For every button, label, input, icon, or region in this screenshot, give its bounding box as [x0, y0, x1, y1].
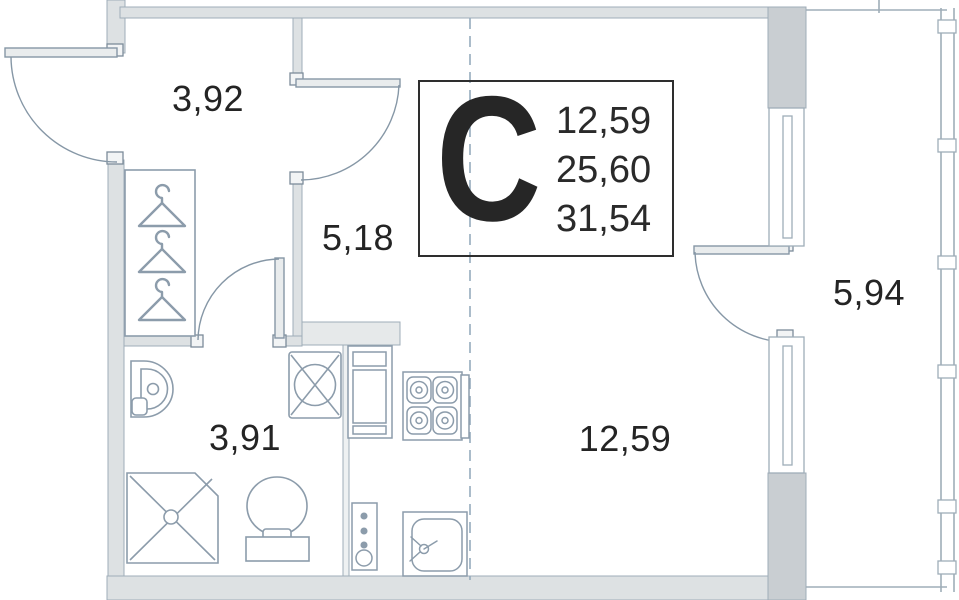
glazing-mullion — [938, 20, 956, 33]
room-area-bathroom: 3,91 — [185, 419, 305, 457]
wardrobe-outline — [125, 170, 195, 336]
riser-pipes — [352, 503, 377, 570]
apartment-type-letter: С — [436, 70, 541, 248]
apartment-info-values: 12,59 25,60 31,54 — [556, 97, 651, 244]
wall-balcony-column-top — [768, 7, 806, 108]
balcony-door-leaf — [694, 246, 789, 254]
floor-plan: С 12,59 25,60 31,54 3,92 5,18 3,91 12,59… — [0, 0, 959, 600]
glazing-mullion — [938, 139, 956, 152]
kitchen-cabinet — [348, 346, 392, 438]
glazing-mullion — [938, 365, 956, 378]
kitchen-sink-icon — [403, 512, 467, 576]
jamb-hall-bottom — [290, 172, 303, 184]
room-area-living-kitchen: 12,59 — [565, 420, 685, 458]
wall-left — [108, 160, 124, 600]
window-upper-pane — [783, 116, 792, 238]
interior-door-leaf — [296, 79, 400, 87]
wall-bath-top-left — [124, 336, 198, 346]
glazing-mullion — [938, 561, 956, 574]
info-value-room-area: 12,59 — [556, 97, 651, 146]
info-value-full-area: 31,54 — [556, 195, 651, 244]
stove-icon — [403, 372, 469, 440]
balcony-door — [694, 246, 789, 342]
wall-bottom — [107, 576, 806, 600]
info-value-total-area: 25,60 — [556, 146, 651, 195]
washbasin-icon — [131, 361, 173, 417]
window-lower-pane — [783, 346, 792, 465]
duct-block — [302, 322, 400, 345]
interior-door — [296, 79, 400, 180]
entrance-door-leaf — [5, 48, 117, 57]
bathroom-door-arc — [198, 259, 279, 340]
wall-hall-lower — [293, 178, 302, 345]
wardrobe — [125, 170, 195, 336]
glazing-mullion — [938, 256, 956, 269]
window-upper — [769, 108, 804, 246]
room-area-balcony: 5,94 — [809, 274, 929, 312]
bathroom-door — [198, 258, 284, 340]
wall-balcony-column-bottom — [768, 473, 806, 600]
room-area-corridor: 5,18 — [298, 219, 418, 257]
room-area-entry-hall: 3,92 — [148, 80, 268, 118]
kitchen-fixtures — [348, 346, 469, 576]
wall-top — [120, 7, 768, 18]
glazing-mullion — [938, 500, 956, 513]
bathroom-door-leaf — [275, 258, 284, 338]
windows — [769, 108, 804, 473]
entrance-door-arc — [11, 57, 117, 162]
washing-machine-icon — [289, 352, 341, 418]
shower-icon — [127, 473, 218, 563]
entrance-door — [5, 48, 117, 162]
window-lower — [769, 337, 804, 473]
balcony-door-arc — [695, 252, 787, 342]
interior-door-arc — [301, 85, 399, 180]
toilet-icon — [246, 477, 309, 561]
